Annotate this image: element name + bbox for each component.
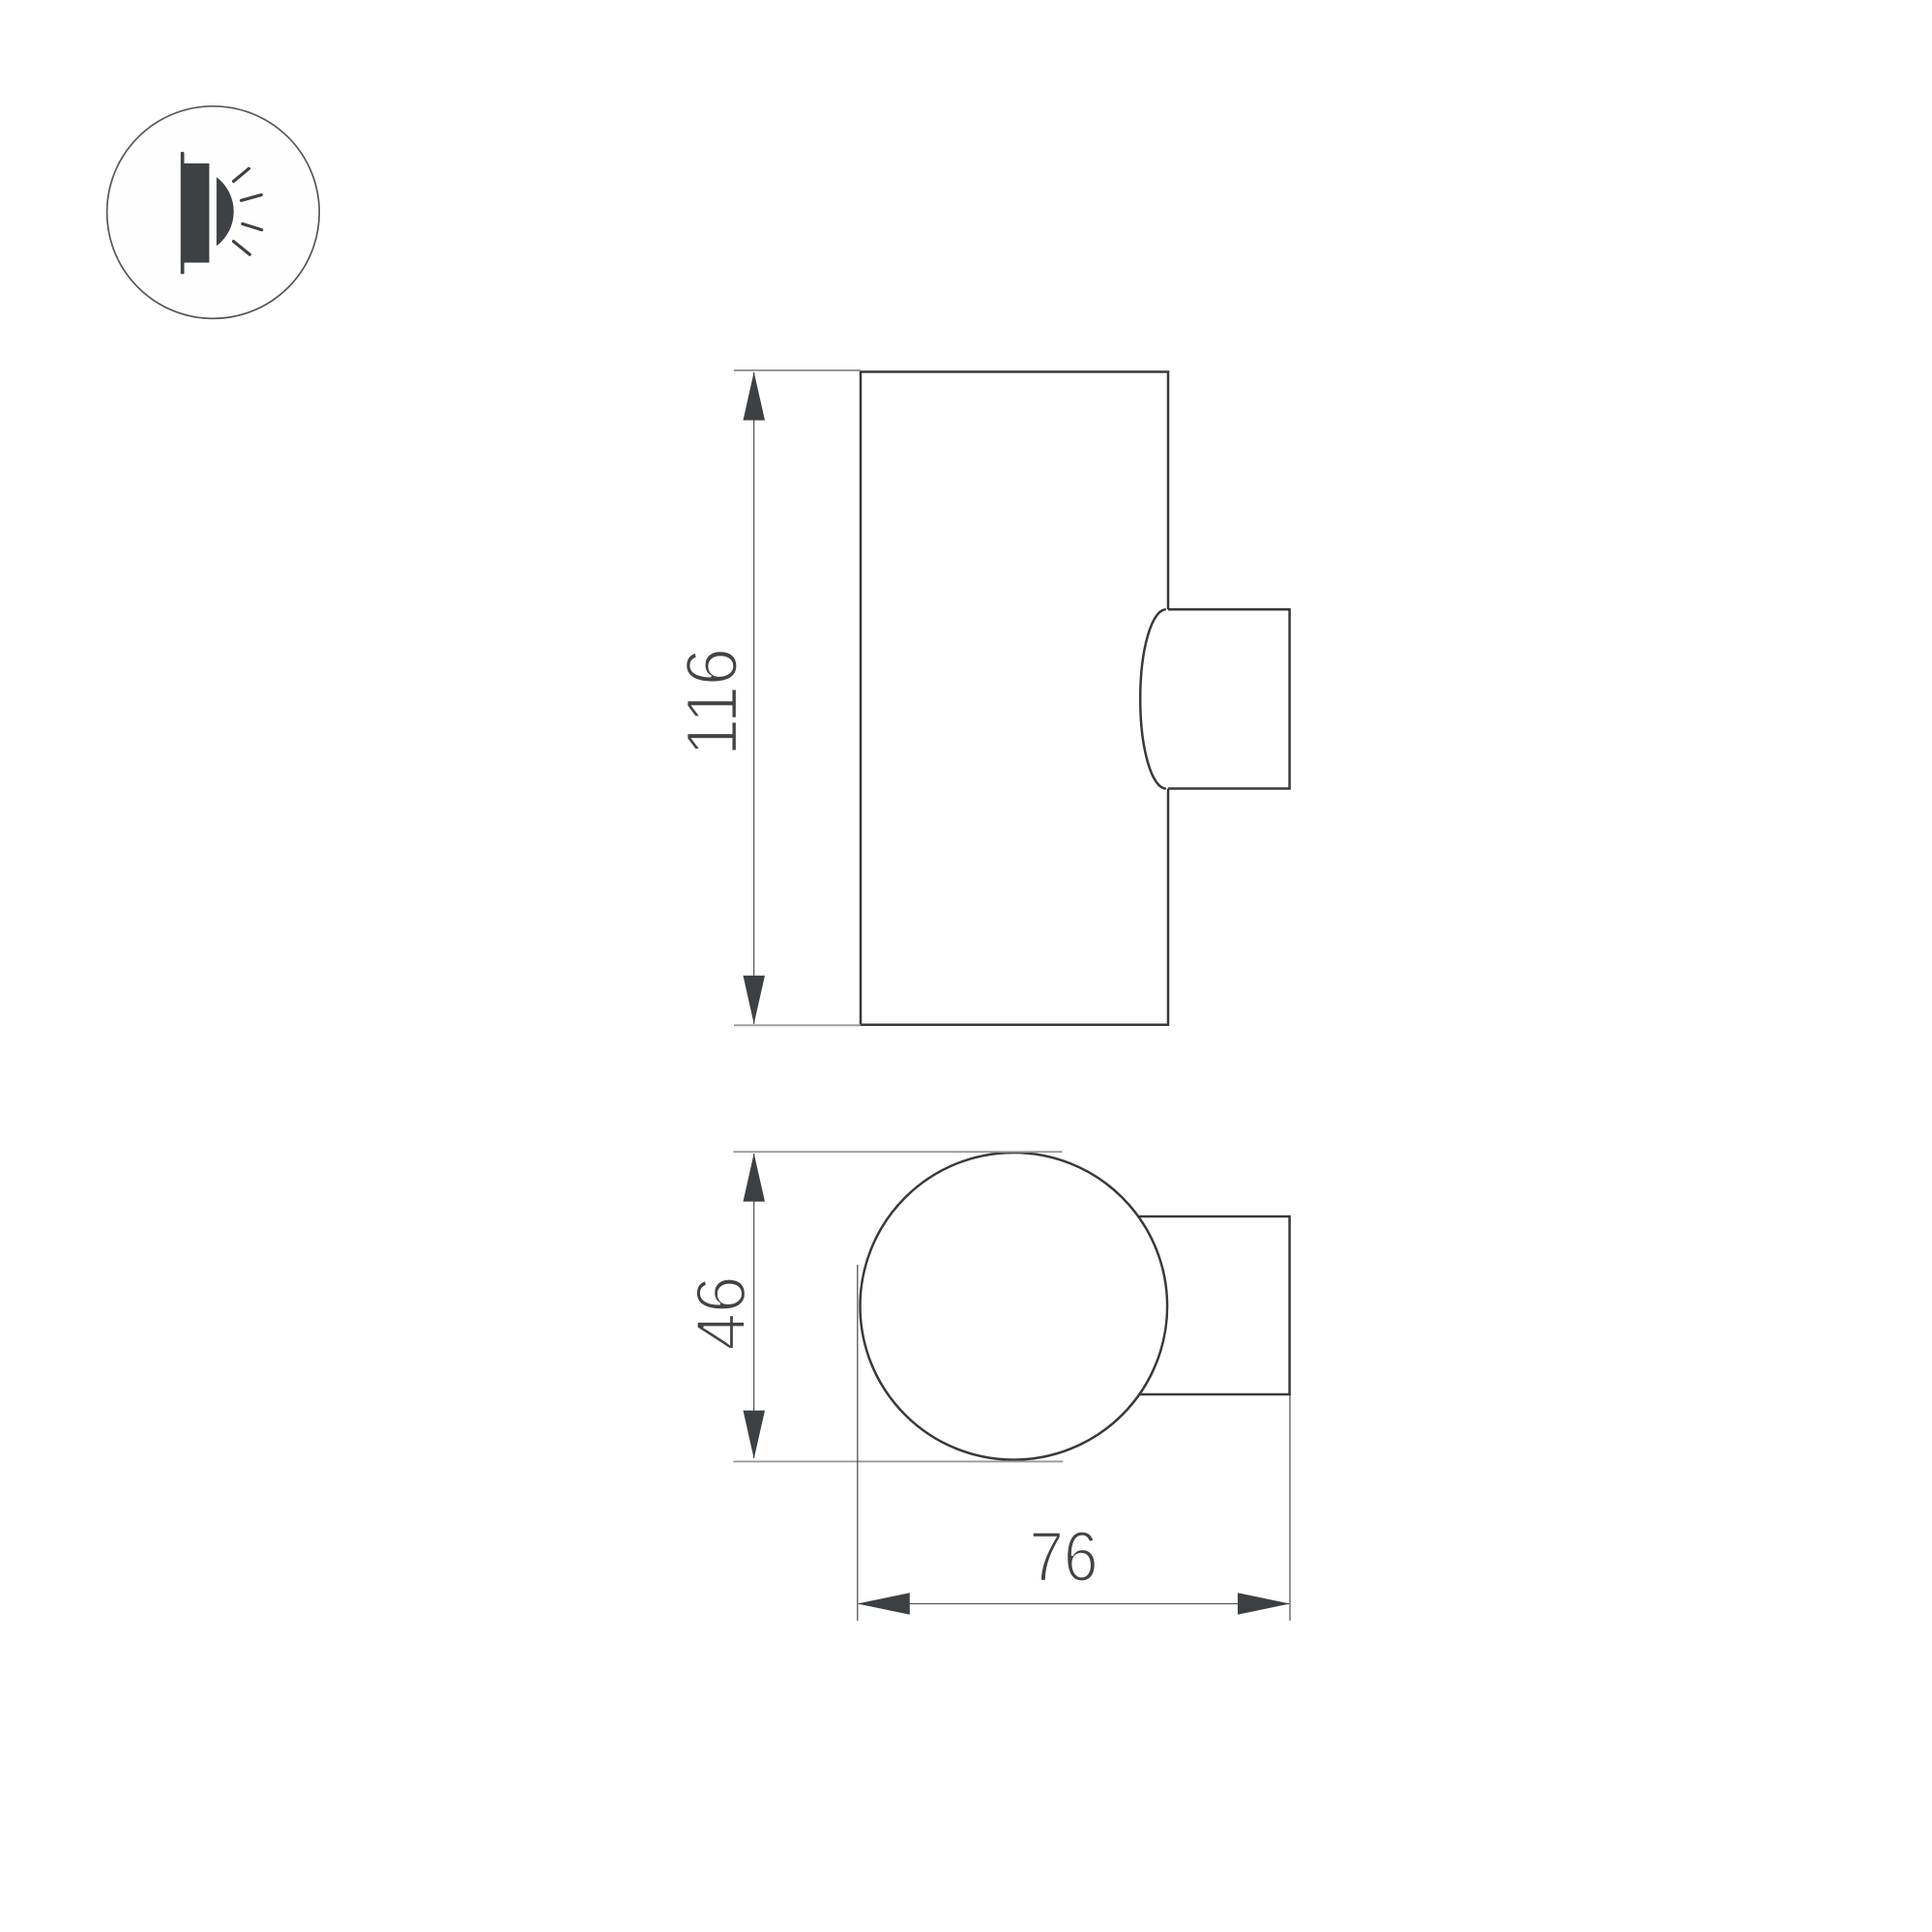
svg-text:76: 76 [1030, 1516, 1098, 1596]
svg-text:116: 116 [671, 648, 752, 756]
svg-text:46: 46 [684, 1276, 761, 1351]
